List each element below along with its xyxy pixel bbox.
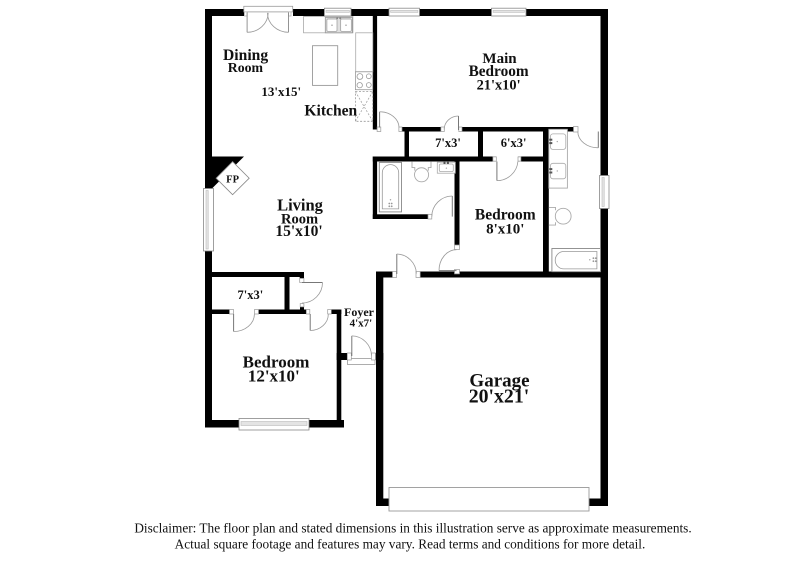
svg-text:4'x7': 4'x7' [350, 318, 373, 330]
svg-text:Disclaimer: The floor plan and: Disclaimer: The floor plan and stated di… [134, 521, 691, 536]
svg-text:Actual square footage and feat: Actual square footage and features may v… [175, 537, 646, 552]
svg-text:8'x10': 8'x10' [486, 222, 524, 238]
svg-text:FP: FP [226, 175, 239, 186]
svg-text:13'x15': 13'x15' [261, 84, 301, 99]
svg-text:7'x3': 7'x3' [238, 288, 264, 302]
svg-text:12'x10': 12'x10' [248, 367, 300, 386]
svg-text:6'x3': 6'x3' [501, 136, 527, 150]
svg-text:7'x3': 7'x3' [435, 136, 461, 150]
svg-text:20'x21': 20'x21' [469, 386, 529, 408]
svg-text:Kitchen: Kitchen [304, 103, 357, 120]
svg-text:21'x10': 21'x10' [477, 78, 521, 94]
svg-text:Room: Room [228, 60, 264, 75]
svg-text:15'x10': 15'x10' [275, 223, 322, 240]
